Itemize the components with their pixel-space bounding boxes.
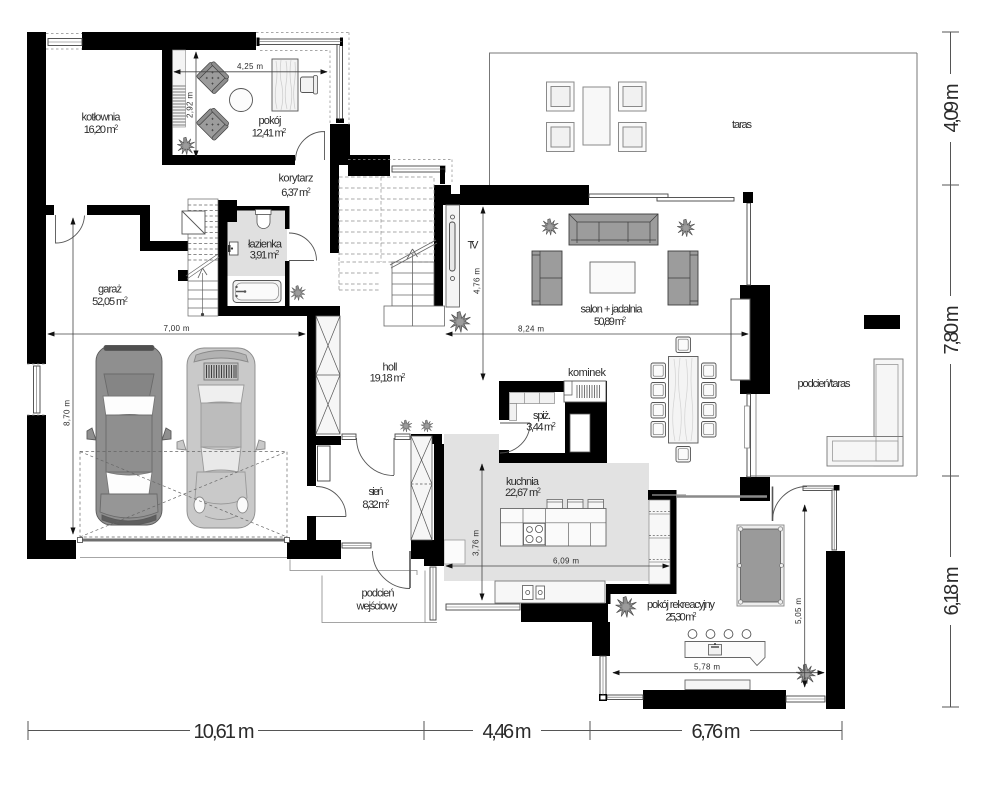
svg-text:6,09 m: 6,09 m — [553, 557, 579, 566]
svg-text:pokój rekreacyjny: pokój rekreacyjny — [647, 599, 716, 611]
svg-text:8,24 m: 8,24 m — [518, 325, 544, 334]
svg-text:sień: sień — [369, 486, 384, 498]
svg-text:25,30 m2: 25,30 m2 — [665, 612, 696, 624]
svg-text:8,70 m: 8,70 m — [63, 400, 72, 426]
svg-text:19,18 m2: 19,18 m2 — [370, 373, 406, 385]
svg-text:4,46 m: 4,46 m — [483, 721, 532, 743]
svg-text:6,76 m: 6,76 m — [692, 721, 741, 743]
svg-text:pokój: pokój — [259, 115, 282, 127]
svg-text:salon + jadalnia: salon + jadalnia — [581, 304, 644, 316]
svg-text:taras: taras — [732, 119, 753, 131]
svg-text:3,76 m: 3,76 m — [472, 530, 481, 556]
svg-text:4,25 m: 4,25 m — [237, 62, 263, 71]
svg-text:korytarz: korytarz — [279, 173, 314, 185]
svg-text:6,18 m: 6,18 m — [941, 567, 963, 616]
svg-text:kominek: kominek — [568, 367, 607, 379]
svg-text:7,00 m: 7,00 m — [164, 324, 190, 333]
svg-text:10,61 m: 10,61 m — [194, 721, 255, 743]
svg-text:kotłownia: kotłownia — [82, 112, 122, 124]
svg-text:8,32 m2: 8,32 m2 — [362, 499, 389, 511]
svg-text:4,09 m: 4,09 m — [941, 84, 963, 133]
svg-text:3,91 m2: 3,91 m2 — [250, 250, 280, 262]
svg-text:spiż.: spiż. — [533, 410, 551, 422]
svg-text:5,78 m: 5,78 m — [694, 663, 720, 672]
svg-text:garaż: garaż — [98, 284, 122, 296]
svg-text:TV: TV — [468, 240, 480, 252]
svg-text:podcień: podcień — [362, 588, 395, 600]
svg-text:wejściowy: wejściowy — [356, 601, 399, 613]
svg-text:50,89 m2: 50,89 m2 — [594, 316, 626, 328]
svg-text:5,05 m: 5,05 m — [794, 598, 803, 624]
svg-text:2,92 m: 2,92 m — [186, 92, 195, 118]
svg-text:52,05 m2: 52,05 m2 — [92, 296, 128, 308]
svg-text:7,80 m: 7,80 m — [941, 306, 963, 355]
svg-text:22,67 m2: 22,67 m2 — [505, 487, 541, 499]
svg-text:3,44 m2: 3,44 m2 — [526, 422, 556, 434]
svg-text:16,20 m2: 16,20 m2 — [84, 124, 119, 136]
svg-text:4,76 m: 4,76 m — [473, 268, 482, 294]
svg-text:podcień/taras: podcień/taras — [798, 378, 852, 390]
svg-text:6,37 m2: 6,37 m2 — [281, 187, 311, 199]
svg-text:12,41 m2: 12,41 m2 — [252, 128, 287, 140]
